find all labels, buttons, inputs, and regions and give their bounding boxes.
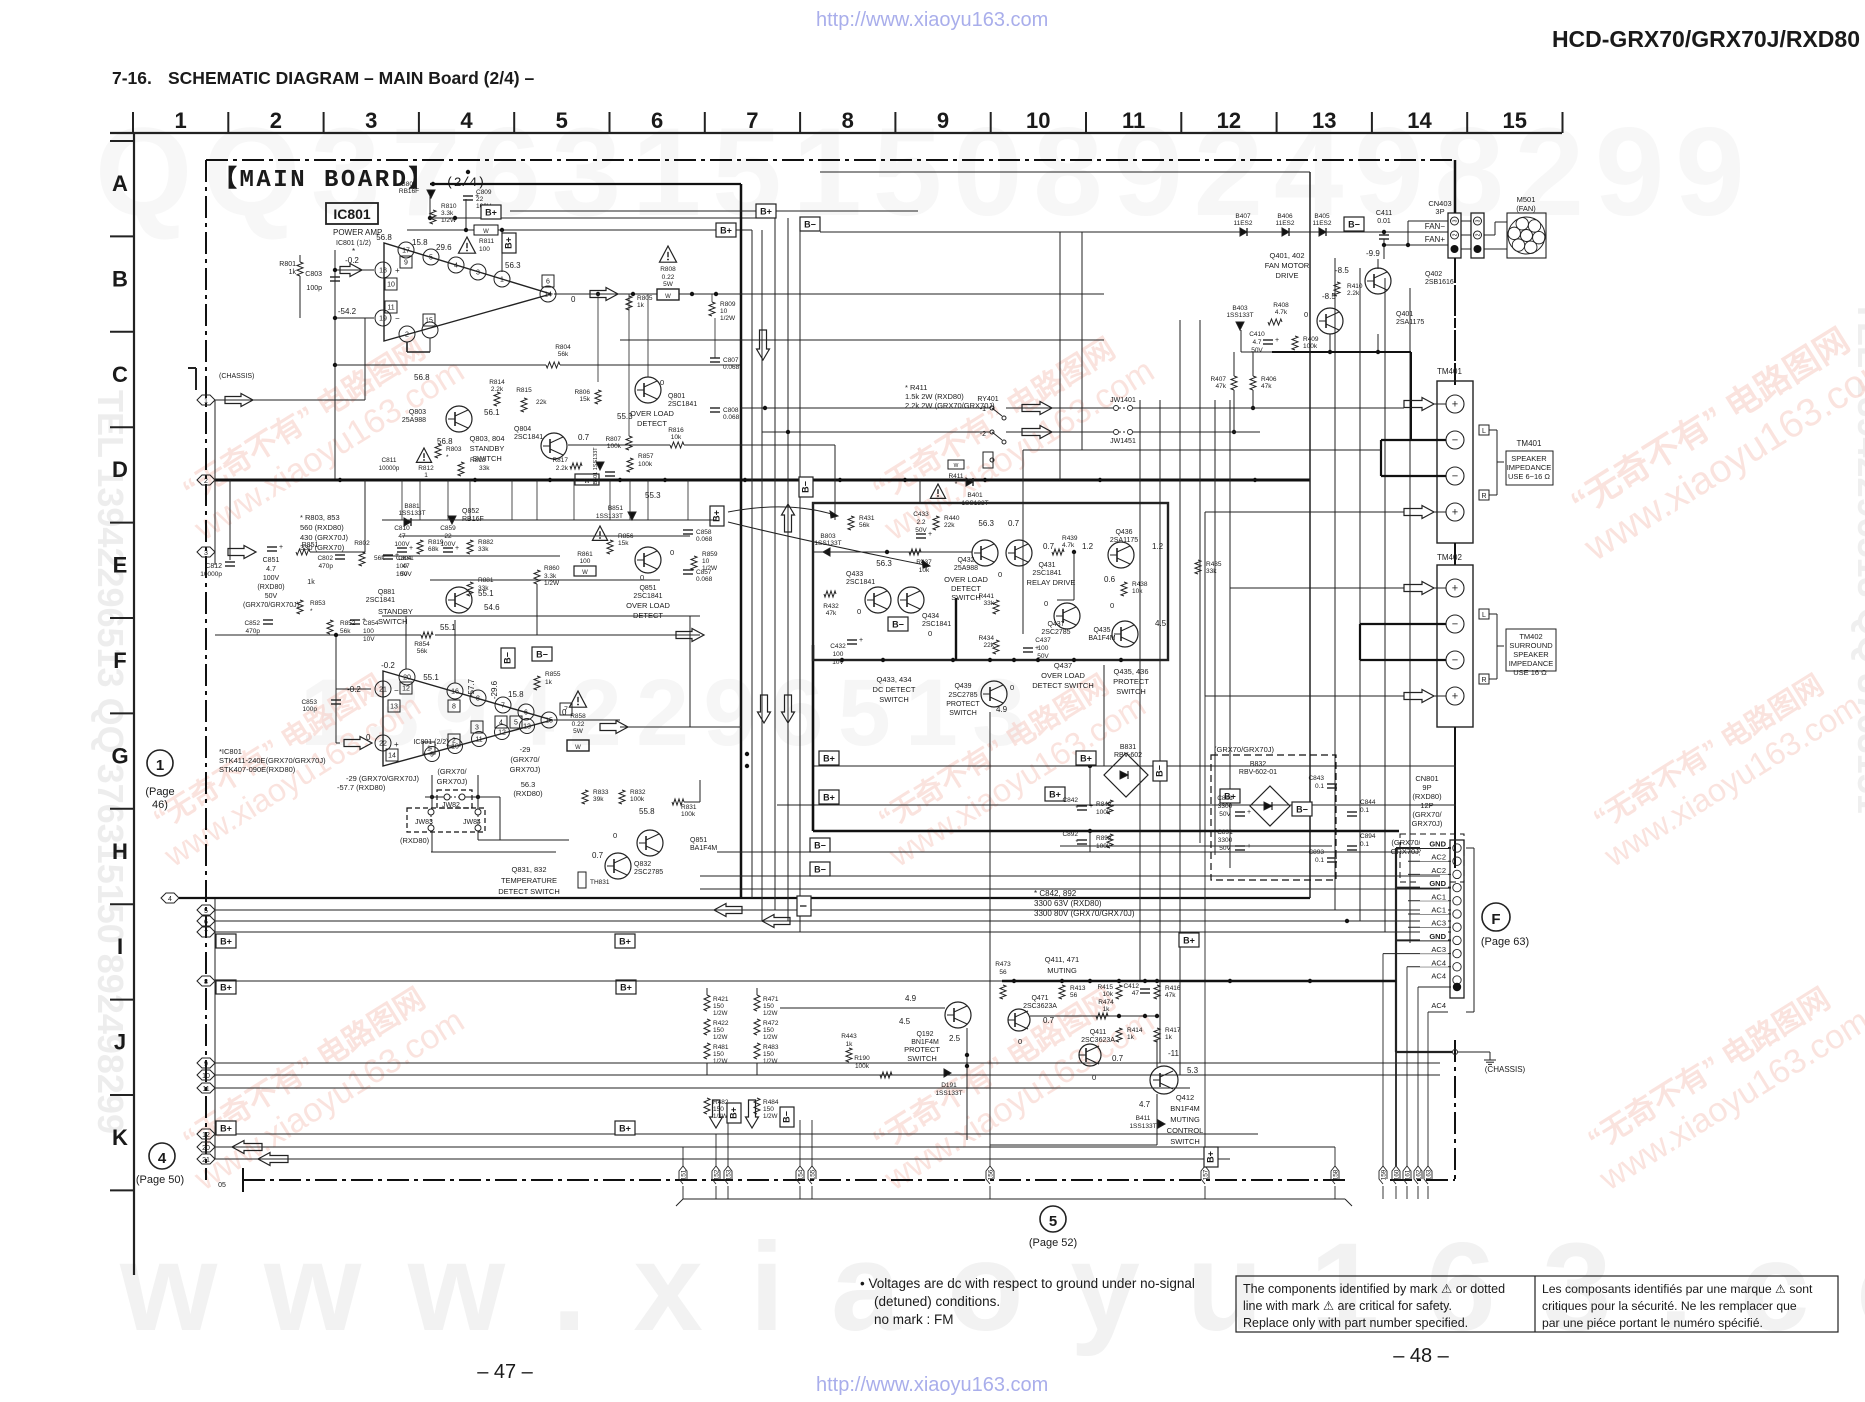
svg-text:W: W — [584, 479, 590, 485]
svg-text:4.9: 4.9 — [996, 705, 1008, 714]
svg-text:1k: 1k — [1127, 1034, 1135, 1041]
svg-text:C411: C411 — [1376, 210, 1392, 217]
svg-text:IC801: IC801 — [333, 206, 371, 222]
svg-text:6: 6 — [524, 710, 528, 717]
svg-text:B−: B− — [892, 620, 904, 630]
svg-text:(GRX70/: (GRX70/ — [1412, 810, 1442, 819]
svg-text:+: + — [1452, 507, 1458, 519]
svg-text:STK407-090E(RXD80): STK407-090E(RXD80) — [219, 765, 296, 774]
svg-text:B−: B− — [502, 652, 512, 664]
svg-text:0: 0 — [1092, 1073, 1096, 1082]
svg-text:R833: R833 — [593, 789, 609, 796]
svg-text:R882: R882 — [478, 539, 494, 546]
svg-text:R438: R438 — [1132, 581, 1148, 588]
svg-text:R417: R417 — [1165, 1027, 1181, 1034]
svg-text:B+: B+ — [485, 208, 497, 218]
svg-text:R415: R415 — [1097, 984, 1113, 991]
svg-text:B−: B− — [814, 865, 826, 875]
svg-text:Q832: Q832 — [634, 861, 651, 868]
svg-text:0.22: 0.22 — [662, 274, 675, 281]
svg-text:8: 8 — [452, 704, 456, 711]
svg-text:1SS133T: 1SS133T — [398, 510, 425, 517]
svg-text:M501: M501 — [1517, 195, 1536, 204]
svg-text:4.7: 4.7 — [1139, 1100, 1151, 1109]
svg-text:JW1401: JW1401 — [1110, 397, 1136, 404]
svg-text:Q881: Q881 — [378, 589, 395, 596]
svg-text:10: 10 — [702, 558, 710, 565]
svg-text:SWITCH: SWITCH — [907, 1054, 937, 1063]
svg-text:CONTROL: CONTROL — [1167, 1126, 1204, 1135]
svg-text:(CHASSIS): (CHASSIS) — [219, 373, 254, 380]
svg-text:B+: B+ — [823, 793, 835, 803]
svg-text:100V: 100V — [394, 541, 410, 548]
svg-text:R815: R815 — [516, 387, 532, 394]
svg-text:0.7: 0.7 — [1112, 1054, 1124, 1063]
svg-text:R411: R411 — [948, 473, 963, 480]
svg-text:R416: R416 — [1165, 985, 1181, 992]
svg-text:150: 150 — [763, 1027, 774, 1034]
svg-text:AC1: AC1 — [1431, 906, 1446, 915]
svg-text:0: 0 — [562, 708, 567, 717]
svg-text:155: 155 — [810, 1169, 817, 1180]
svg-text:0.068: 0.068 — [696, 576, 713, 583]
svg-text:10: 10 — [1026, 108, 1050, 133]
svg-text:+: + — [1247, 843, 1251, 850]
svg-text:DETECT SWITCH: DETECT SWITCH — [498, 887, 560, 896]
svg-text:AC4: AC4 — [1431, 1001, 1446, 1010]
svg-text:0.068: 0.068 — [723, 364, 740, 371]
svg-text:DETECT SWITCH: DETECT SWITCH — [1032, 681, 1094, 690]
svg-text:4.5: 4.5 — [1155, 619, 1167, 628]
svg-text:4: 4 — [499, 720, 503, 727]
svg-text:B−: B− — [1154, 765, 1164, 777]
svg-text:I: I — [117, 934, 123, 959]
svg-text:A: A — [112, 171, 128, 196]
svg-text:C894: C894 — [1360, 833, 1376, 840]
svg-text:– 48 –: – 48 – — [1393, 1345, 1449, 1367]
svg-text:55.3: 55.3 — [617, 412, 633, 421]
svg-text:R808: R808 — [660, 266, 676, 273]
svg-text:4.9: 4.9 — [905, 994, 917, 1003]
svg-text:11: 11 — [202, 1086, 209, 1093]
svg-text:B+: B+ — [720, 226, 732, 236]
svg-text:C841: C841 — [1217, 795, 1233, 802]
svg-text:B832: B832 — [1250, 761, 1266, 768]
svg-text:R: R — [1481, 493, 1486, 500]
svg-text:-11: -11 — [1168, 1049, 1180, 1058]
svg-text:7: 7 — [746, 108, 758, 133]
svg-text:6: 6 — [204, 919, 208, 926]
svg-text:CN801: CN801 — [1415, 774, 1438, 783]
svg-text:STANDBY: STANDBY — [470, 444, 505, 453]
svg-text:3300: 3300 — [1218, 837, 1233, 844]
svg-text:R806: R806 — [574, 389, 590, 396]
svg-text:STANDBY: STANDBY — [378, 607, 413, 616]
svg-text:B881: B881 — [404, 503, 420, 510]
svg-text:154: 154 — [798, 1169, 805, 1180]
svg-text:161: 161 — [1405, 1169, 1412, 1180]
svg-text:B−: B− — [536, 650, 548, 660]
svg-text:3: 3 — [475, 725, 479, 732]
svg-text:B+: B+ — [760, 207, 772, 217]
svg-text:C811: C811 — [381, 457, 396, 464]
svg-text:1: 1 — [500, 277, 504, 284]
svg-text:(RXD80): (RXD80) — [400, 836, 430, 845]
svg-text:100V: 100V — [263, 575, 280, 582]
svg-text:9: 9 — [204, 1061, 208, 1068]
svg-text:TM402: TM402 — [1437, 553, 1462, 562]
svg-text:2SC1841: 2SC1841 — [922, 621, 951, 628]
svg-text:14: 14 — [1407, 108, 1432, 133]
svg-text:SURROUND: SURROUND — [1509, 641, 1553, 650]
svg-text:Q804: Q804 — [514, 426, 531, 433]
svg-text:50V: 50V — [1219, 811, 1231, 818]
svg-text:56.3: 56.3 — [876, 559, 892, 568]
svg-text:Q851: Q851 — [639, 585, 656, 592]
svg-text:C852: C852 — [244, 620, 260, 627]
svg-text:1/2W: 1/2W — [763, 1058, 778, 1065]
svg-text:B−: B− — [1296, 805, 1308, 815]
svg-text:DETECT: DETECT — [951, 584, 981, 593]
svg-text:1SS133T: 1SS133T — [1226, 312, 1253, 319]
svg-text:SPEAKER: SPEAKER — [1511, 454, 1547, 463]
svg-text:B−: B− — [814, 841, 826, 851]
svg-text:22: 22 — [379, 741, 387, 748]
svg-text:5: 5 — [556, 108, 568, 133]
svg-text:+: + — [1452, 691, 1458, 703]
svg-text:R816: R816 — [668, 427, 684, 434]
svg-text:W: W — [582, 570, 588, 576]
svg-text:1k: 1k — [637, 302, 645, 309]
svg-text:R435: R435 — [1206, 561, 1222, 568]
svg-text:50V: 50V — [1037, 653, 1049, 660]
svg-text:1: 1 — [156, 757, 164, 774]
svg-text:5: 5 — [514, 720, 518, 727]
svg-text:1k: 1k — [545, 679, 553, 686]
svg-text:R809: R809 — [720, 301, 736, 308]
svg-text:PROTECT: PROTECT — [946, 701, 980, 708]
svg-text:1k: 1k — [289, 269, 297, 276]
svg-text:(GRX70/: (GRX70/ — [510, 755, 540, 764]
svg-text:15k: 15k — [618, 540, 629, 547]
svg-text:-8.5: -8.5 — [1335, 266, 1349, 275]
svg-text:B−: B− — [781, 1111, 791, 1123]
svg-text:2SC1841: 2SC1841 — [514, 434, 543, 441]
svg-text:R855: R855 — [545, 671, 561, 678]
svg-text:3: 3 — [365, 108, 377, 133]
svg-text:TM402: TM402 — [1519, 632, 1542, 641]
svg-text:2: 2 — [405, 332, 409, 339]
svg-text:SWITCH: SWITCH — [1170, 1137, 1200, 1146]
svg-text:2: 2 — [1476, 233, 1482, 236]
svg-text:0: 0 — [928, 629, 932, 638]
svg-text:15: 15 — [1503, 108, 1527, 133]
svg-text:IC801 (2/2): IC801 (2/2) — [413, 739, 448, 746]
svg-text:15: 15 — [545, 718, 553, 725]
svg-text:5.3: 5.3 — [1187, 1066, 1199, 1075]
svg-text:-29: -29 — [520, 745, 531, 754]
svg-text:F: F — [113, 648, 126, 673]
svg-text:1/2W: 1/2W — [544, 580, 560, 587]
svg-text:22: 22 — [476, 196, 484, 203]
svg-text:54.6: 54.6 — [484, 603, 500, 612]
svg-text:56.8: 56.8 — [437, 437, 453, 446]
svg-text:R439: R439 — [1062, 535, 1078, 542]
svg-text:C410: C410 — [1249, 331, 1265, 338]
svg-text:56: 56 — [999, 969, 1007, 976]
svg-text:B−: B− — [1348, 220, 1360, 230]
svg-text:B−: B− — [804, 220, 816, 230]
svg-text:05: 05 — [218, 1182, 226, 1189]
svg-text:Q439: Q439 — [954, 683, 971, 690]
svg-text:SWITCH: SWITCH — [951, 593, 981, 602]
svg-text:Q852: Q852 — [462, 508, 479, 515]
svg-text:C892: C892 — [1062, 831, 1078, 838]
svg-text:1/2W: 1/2W — [441, 217, 457, 224]
svg-text:R406: R406 — [1261, 376, 1277, 383]
svg-text:150: 150 — [713, 1027, 724, 1034]
svg-text:55.1: 55.1 — [440, 623, 456, 632]
svg-text:Q436: Q436 — [1115, 529, 1132, 536]
svg-text:C851: C851 — [263, 557, 280, 564]
svg-text:162: 162 — [1416, 1169, 1423, 1180]
svg-text:(GRX70/GRX70J): (GRX70/GRX70J) — [1214, 745, 1275, 754]
svg-text:1/2W: 1/2W — [720, 315, 736, 322]
svg-text:-9.9: -9.9 — [1366, 249, 1380, 258]
svg-text:+: + — [394, 740, 399, 749]
svg-text:5: 5 — [429, 255, 433, 262]
svg-text:AC2: AC2 — [1431, 853, 1446, 862]
svg-text:-29 (GRX70/GRX70J): -29 (GRX70/GRX70J) — [346, 774, 419, 783]
svg-text:20: 20 — [202, 1145, 210, 1152]
svg-text:56k: 56k — [340, 628, 351, 635]
svg-text:OVER LOAD: OVER LOAD — [1041, 671, 1085, 680]
svg-text:2SA1175: 2SA1175 — [1396, 319, 1424, 326]
svg-text:B406: B406 — [1277, 213, 1293, 220]
svg-text:Q402: Q402 — [1425, 271, 1442, 278]
svg-text:D: D — [112, 457, 128, 482]
svg-text:3.3k: 3.3k — [441, 210, 454, 217]
svg-text:5: 5 — [204, 908, 208, 915]
svg-text:14: 14 — [544, 292, 552, 299]
svg-text:1: 1 — [204, 398, 208, 405]
svg-text:12: 12 — [402, 686, 410, 693]
svg-text:+: + — [1035, 645, 1039, 652]
svg-text:R813: R813 — [470, 457, 486, 464]
svg-text:0.7: 0.7 — [1043, 542, 1055, 551]
svg-text:8: 8 — [476, 696, 480, 703]
svg-text:11ES2: 11ES2 — [1312, 220, 1331, 227]
svg-text:2SC1841: 2SC1841 — [668, 401, 697, 408]
svg-text:B+: B+ — [1205, 1151, 1215, 1163]
svg-text:AC2: AC2 — [1431, 866, 1446, 875]
svg-text:http://www.xiaoyu163.com: http://www.xiaoyu163.com — [816, 9, 1048, 31]
svg-text:+: + — [1452, 583, 1458, 595]
svg-text:2: 2 — [1453, 233, 1459, 236]
svg-text:4.7k: 4.7k — [1062, 542, 1075, 549]
svg-text:1/2W: 1/2W — [713, 1058, 728, 1065]
svg-text:100: 100 — [833, 651, 844, 658]
svg-text:3300: 3300 — [1218, 803, 1233, 810]
svg-text:22k: 22k — [944, 522, 955, 529]
svg-text:USE 6−16 Ω: USE 6−16 Ω — [1508, 472, 1550, 481]
svg-text:SPEAKER: SPEAKER — [1513, 650, 1549, 659]
svg-text:Q433: Q433 — [846, 571, 863, 578]
svg-text:-54.2: -54.2 — [338, 307, 357, 316]
svg-text:0.068: 0.068 — [723, 414, 740, 421]
svg-text:10000p: 10000p — [379, 465, 400, 472]
svg-text:0: 0 — [660, 378, 664, 387]
svg-text:+: + — [859, 637, 863, 644]
svg-text:C: C — [112, 362, 128, 387]
svg-text:C809: C809 — [476, 189, 492, 196]
svg-text:100k: 100k — [607, 443, 622, 450]
svg-text:(GRX70/: (GRX70/ — [1391, 838, 1421, 847]
svg-text:R408: R408 — [1273, 302, 1289, 309]
svg-text:(detuned) conditions.: (detuned) conditions. — [874, 1294, 1000, 1309]
svg-text:*: * — [352, 247, 355, 256]
svg-text:L: L — [1482, 612, 1486, 619]
svg-text:13: 13 — [523, 724, 531, 731]
svg-text:B+: B+ — [220, 983, 232, 993]
svg-text:R472: R472 — [763, 1020, 779, 1027]
svg-text:-29.6: -29.6 — [490, 680, 499, 699]
svg-text:Q401, 402: Q401, 402 — [1269, 251, 1304, 260]
svg-text:DETECT: DETECT — [637, 419, 667, 428]
svg-text:Q851: Q851 — [690, 837, 707, 844]
svg-text:+: + — [409, 545, 413, 552]
svg-text:100: 100 — [363, 628, 374, 635]
svg-text:* C842, 892: * C842, 892 — [1034, 889, 1077, 898]
svg-text:+: + — [279, 544, 283, 551]
svg-text:−: − — [394, 686, 399, 695]
svg-text:D191: D191 — [941, 1082, 957, 1089]
svg-text:Q431: Q431 — [1038, 562, 1055, 569]
svg-text:Q803: Q803 — [409, 409, 426, 416]
svg-text:47: 47 — [1132, 990, 1140, 997]
svg-text:0: 0 — [670, 548, 674, 557]
svg-text:B831: B831 — [1120, 744, 1136, 751]
svg-text:DC DETECT: DC DETECT — [873, 685, 916, 694]
svg-text:158: 158 — [1333, 1169, 1340, 1180]
svg-text:1: 1 — [424, 472, 428, 479]
svg-text:(Page 52): (Page 52) — [1029, 1237, 1077, 1249]
svg-text:(Page: (Page — [145, 786, 174, 798]
svg-text:159: 159 — [1381, 1169, 1388, 1180]
svg-text:14: 14 — [388, 753, 396, 760]
svg-text:OVER LOAD: OVER LOAD — [626, 601, 670, 610]
svg-text:47k: 47k — [826, 610, 837, 617]
svg-text:-57.7: -57.7 — [467, 678, 476, 697]
svg-text:10: 10 — [451, 744, 459, 751]
svg-text:4: 4 — [454, 263, 458, 270]
svg-text:4.7: 4.7 — [1252, 339, 1261, 346]
svg-text:J: J — [114, 1030, 126, 1055]
svg-text:2SC2785: 2SC2785 — [1041, 629, 1070, 636]
svg-text:17: 17 — [402, 248, 410, 255]
svg-text:R859: R859 — [702, 551, 718, 558]
svg-text:C807: C807 — [723, 357, 739, 364]
svg-text:2SB1616: 2SB1616 — [1425, 279, 1454, 286]
svg-text:0.7: 0.7 — [1043, 1016, 1055, 1025]
svg-text:1SS133T: 1SS133T — [935, 1090, 962, 1097]
svg-text:C803: C803 — [305, 271, 322, 278]
svg-text:AC4: AC4 — [1431, 958, 1446, 967]
svg-text:AC3: AC3 — [1431, 919, 1446, 928]
svg-text:FAN+: FAN+ — [1425, 235, 1446, 244]
svg-text:C810: C810 — [394, 525, 410, 532]
svg-text:153: 153 — [726, 1169, 733, 1180]
svg-text:5W: 5W — [663, 281, 674, 288]
svg-text:2SC1841: 2SC1841 — [633, 593, 662, 600]
svg-text:3P: 3P — [1435, 207, 1444, 216]
svg-text:10k: 10k — [1103, 991, 1114, 998]
svg-text:* R803, 853: * R803, 853 — [300, 513, 340, 522]
svg-text:10k: 10k — [671, 434, 682, 441]
svg-text:RELAY DRIVE: RELAY DRIVE — [1027, 578, 1076, 587]
svg-text:56.1: 56.1 — [484, 408, 500, 417]
svg-text:C891: C891 — [1217, 829, 1233, 836]
svg-text:0: 0 — [1010, 683, 1014, 692]
svg-text:1k: 1k — [846, 1041, 854, 1048]
svg-text:R810: R810 — [441, 203, 457, 210]
svg-text:R817: R817 — [552, 457, 568, 464]
svg-text:GRX70J): GRX70J) — [1412, 819, 1443, 828]
svg-text:-8.5: -8.5 — [1322, 292, 1336, 301]
svg-text:2SC3623A: 2SC3623A — [1023, 1003, 1057, 1010]
svg-text:SCHEMATIC DIAGRAM – MAIN Boa: SCHEMATIC DIAGRAM – MAIN Board (2/4) – — [168, 68, 534, 88]
svg-text:10: 10 — [202, 1073, 210, 1080]
svg-text:3300 63V (RXD80): 3300 63V (RXD80) — [1034, 899, 1102, 908]
svg-text:SWITCH: SWITCH — [879, 695, 909, 704]
svg-text:1SS133T: 1SS133T — [1129, 1123, 1156, 1130]
svg-text:MUTING: MUTING — [1047, 966, 1077, 975]
svg-text:0: 0 — [1018, 1037, 1022, 1046]
svg-text:1/2W: 1/2W — [763, 1113, 778, 1120]
svg-text:4.7k: 4.7k — [1275, 309, 1288, 316]
svg-text:12: 12 — [202, 1132, 210, 1139]
svg-text:IC801 (1/2): IC801 (1/2) — [336, 240, 371, 247]
svg-text:C893: C893 — [1308, 849, 1324, 856]
svg-text:R407: R407 — [1210, 376, 1226, 383]
svg-text:100p: 100p — [306, 285, 322, 292]
svg-text:RB16F: RB16F — [399, 188, 419, 195]
svg-text:0.1: 0.1 — [1315, 783, 1324, 790]
svg-text:par une piéce portant le numér: par une piéce portant le numéro spécifié… — [1542, 1316, 1763, 1330]
svg-text:+: + — [928, 531, 932, 538]
svg-text:10000p: 10000p — [200, 571, 222, 578]
svg-text:2.2k: 2.2k — [556, 465, 569, 472]
svg-text:10k: 10k — [1132, 588, 1143, 595]
svg-text:2SC2785: 2SC2785 — [948, 692, 977, 699]
svg-text:2SC1841: 2SC1841 — [846, 579, 875, 586]
svg-text:15.8: 15.8 — [412, 238, 428, 247]
svg-text:3: 3 — [204, 550, 208, 557]
svg-text:(Page 63): (Page 63) — [1481, 936, 1529, 948]
svg-text:B407: B407 — [1235, 213, 1251, 220]
svg-text:Les composants identifiés par: Les composants identifiés par une marque… — [1542, 1282, 1813, 1296]
svg-text:100k: 100k — [855, 1063, 870, 1070]
svg-text:39k: 39k — [593, 796, 604, 803]
svg-text:2: 2 — [270, 108, 282, 133]
svg-text:B+: B+ — [619, 1124, 631, 1134]
svg-text:OVER LOAD: OVER LOAD — [630, 409, 674, 418]
svg-text:21: 21 — [379, 687, 387, 694]
svg-text:156: 156 — [988, 1169, 995, 1180]
svg-text:7-16.: 7-16. — [112, 68, 152, 88]
svg-text:29.6: 29.6 — [436, 243, 452, 252]
svg-text:1k: 1k — [307, 579, 315, 586]
